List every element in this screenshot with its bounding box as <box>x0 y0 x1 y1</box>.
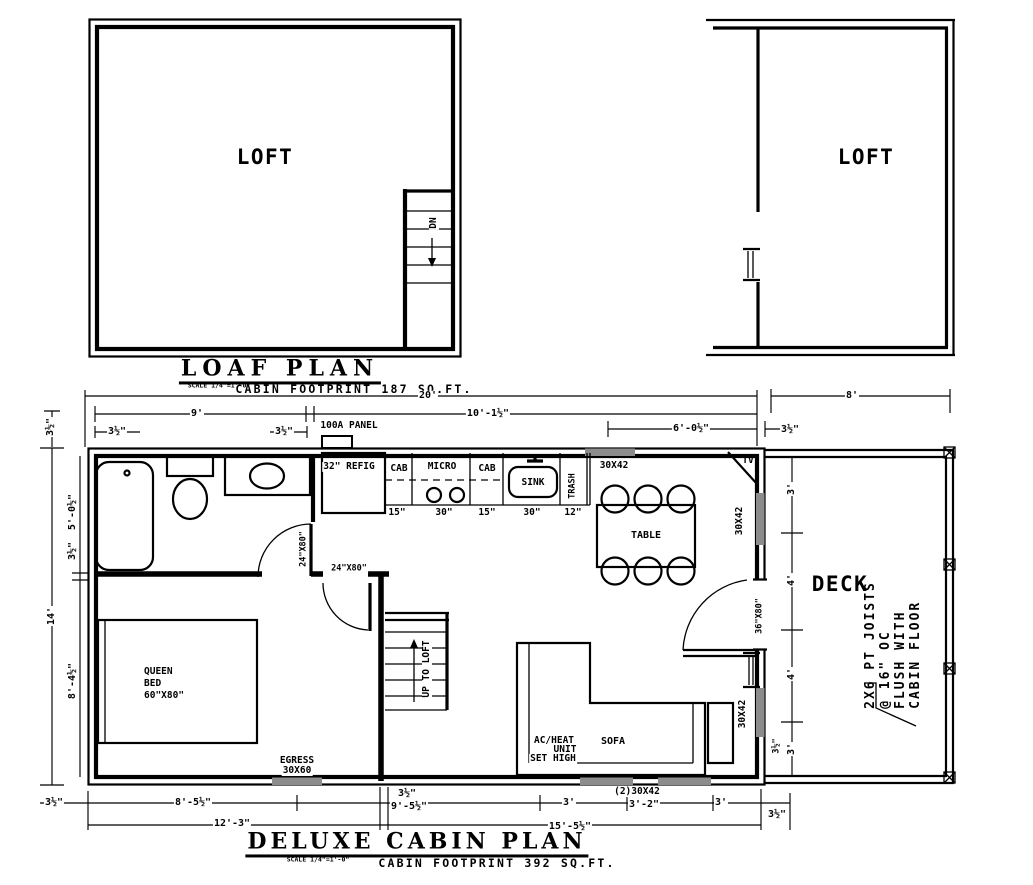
window-right-lower-30x42 <box>756 688 765 737</box>
dim-trash-12: 12" <box>563 508 582 518</box>
bedroom <box>98 583 370 743</box>
joist-note-line: CABIN FLOOR <box>908 581 923 709</box>
cabin-plan-footprint: CABIN FOOTPRINT 392 SQ.FT. <box>377 857 616 869</box>
dim-wall: 3½" <box>780 425 800 436</box>
deck-room-label: DECK <box>811 573 870 595</box>
vanity-sink <box>250 464 284 489</box>
sink-label: SINK <box>521 478 546 488</box>
window-right-30x42 <box>756 493 765 545</box>
cabinet-label: CAB <box>389 464 408 474</box>
loft2-room-label: LOFT <box>837 146 896 168</box>
dim-6ft: 6'-0½" <box>672 424 710 435</box>
dim-wall: 3½" <box>107 427 127 438</box>
microwave-label: MICRO <box>427 462 458 472</box>
queen-bed <box>98 620 257 743</box>
panel-box <box>322 436 352 448</box>
queen-bed-label: 60"X80" <box>143 691 185 701</box>
cabinet-label: CAB <box>477 464 496 474</box>
window-bottom-1 <box>580 778 633 786</box>
loft-right-walls <box>706 20 955 355</box>
bathroom-walls <box>96 455 389 577</box>
dining <box>597 452 757 585</box>
chair <box>668 486 695 513</box>
window-label: 30X42 <box>735 506 745 537</box>
bath-door-label: 24"X80" <box>300 530 309 568</box>
dim-9ft: 9' <box>190 409 204 420</box>
dim-20ft: 20' <box>418 391 438 402</box>
chair <box>668 558 695 585</box>
burner-2 <box>450 488 464 502</box>
egress-label: 30X60 <box>282 766 313 776</box>
queen-bed-label: BED <box>143 679 162 689</box>
dim-wall: 3½" <box>274 427 294 438</box>
refrigerator-label: 32" REFIG <box>322 462 375 472</box>
tub-drain <box>125 471 130 476</box>
loft-window-icon <box>743 249 760 280</box>
dim-deck-3ft: 3' <box>787 742 798 756</box>
dim-deck-3ft: 3' <box>787 482 798 496</box>
chair <box>635 558 662 585</box>
dim-12-3: 12'-3" <box>213 819 251 830</box>
egress-window <box>272 778 322 786</box>
dim-bedroom-depth: 8'-4½" <box>68 662 79 700</box>
chair <box>602 486 629 513</box>
dim-10ft: 10'-1½" <box>466 409 510 420</box>
counter <box>385 453 590 505</box>
joist-note-line: FLUSH WITH <box>893 581 908 709</box>
sofa-label: SOFA <box>600 737 626 748</box>
dim-sink-30: 30" <box>522 508 541 518</box>
dim-deck-4ft: 4' <box>787 573 798 587</box>
bathtub <box>96 462 153 570</box>
toilet-tank <box>167 456 213 476</box>
cabin-plan-scale: SCALE 1/4"=1'-0" <box>286 857 351 864</box>
dim-deck-8ft: 8' <box>845 391 859 402</box>
ac-heat-label: SET HIGH <box>529 754 577 764</box>
tv-label: TV <box>741 456 754 466</box>
windows <box>272 449 765 786</box>
dim-window-width: 3'-2" <box>628 800 660 811</box>
dim-deck-4ft: 4' <box>787 667 798 681</box>
chair <box>635 486 662 513</box>
double-window-label: (2)30X42 <box>613 787 661 797</box>
dim-cab-15: 15" <box>477 508 496 518</box>
trash-label: TRASH <box>569 472 578 500</box>
joist-note: 2X6 PT JOISTS @ 16" OC FLUSH WITH CABIN … <box>863 581 923 709</box>
queen-bed-label: QUEEN <box>143 667 174 677</box>
dim-micro-30: 30" <box>434 508 453 518</box>
cabin-stairs <box>381 574 449 781</box>
loft-plan-title: LOAF PLAN <box>179 357 381 384</box>
dim-wall: 3½" <box>767 810 787 821</box>
panel-label: 100A PANEL <box>319 421 378 431</box>
table-label: TABLE <box>630 531 662 542</box>
entry-door-swing <box>683 580 747 650</box>
dim-bath-depth: 5'-0½" <box>68 493 79 531</box>
dim-living-width: 9'-5½" <box>390 802 428 813</box>
end-table <box>708 703 733 763</box>
dim-wall: 3½" <box>44 798 64 809</box>
window-label: 30X42 <box>599 461 630 471</box>
entry-door-label: 36"X80" <box>756 597 765 635</box>
floorplan-sheet: LOFT LOFT DN LOAF PLAN SCALE 1/4"=1'-0" … <box>0 0 1033 885</box>
cabin-plan-title: DELUXE CABIN PLAN <box>245 830 588 857</box>
dim-bedroom-width: 8'-5½" <box>174 798 212 809</box>
burner-1 <box>427 488 441 502</box>
toilet-bowl <box>173 479 207 519</box>
window-top-30x42 <box>585 449 635 457</box>
window-label: 30X42 <box>738 699 748 730</box>
loft-stairs <box>405 189 452 350</box>
dim-3ft: 3' <box>714 798 728 809</box>
loft-room-label: LOFT <box>236 146 295 168</box>
dim-wall: 3½" <box>397 789 417 800</box>
joist-note-line: 2X6 PT JOISTS <box>863 581 878 709</box>
dim-wall: 3½" <box>773 737 782 754</box>
dim-14ft: 14' <box>47 606 58 626</box>
chair <box>602 558 629 585</box>
joist-note-line: @ 16" OC <box>878 581 893 709</box>
bedroom-door-label: 24"X80" <box>330 565 368 574</box>
dim-wall: 3½" <box>46 417 57 437</box>
bathroom-fixtures <box>96 456 310 570</box>
dim-cab-15: 15" <box>387 508 406 518</box>
dim-3ft: 3' <box>562 798 576 809</box>
deck-walls <box>765 450 954 783</box>
floorplan-linework <box>0 0 1033 885</box>
up-to-loft-label: UP TO LOFT <box>422 639 432 698</box>
stairs-dn-label: DN <box>429 216 439 229</box>
bedroom-door-swing <box>323 583 368 630</box>
dim-wall: 3½" <box>68 541 79 561</box>
window-bottom-2 <box>658 778 711 786</box>
